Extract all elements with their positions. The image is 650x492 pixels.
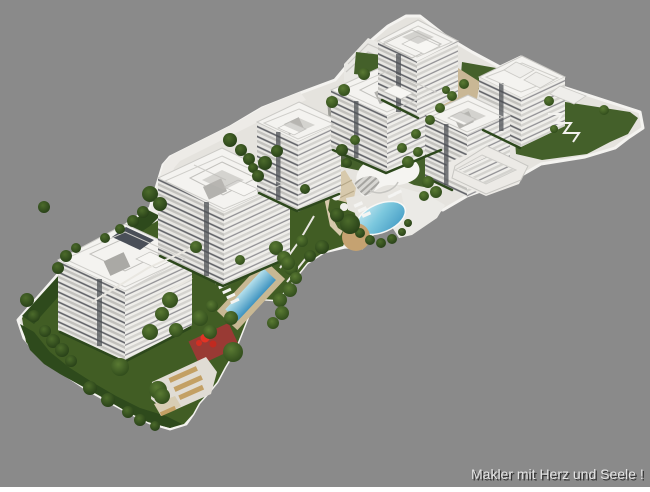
svg-text:Makler mit Herz und Seele !: Makler mit Herz und Seele ! [471,466,644,482]
